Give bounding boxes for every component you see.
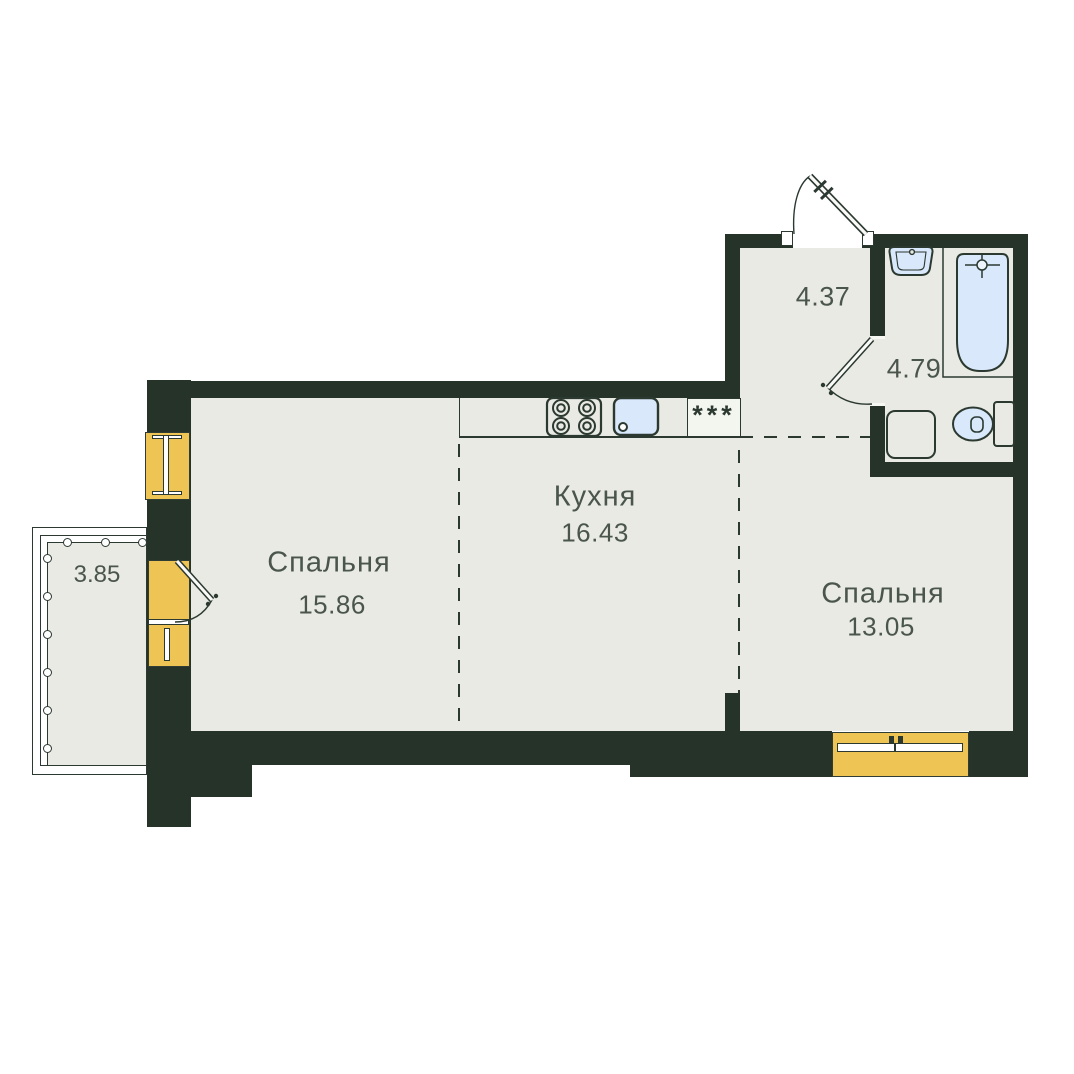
- glazing-post-icon: [63, 538, 72, 547]
- glazing-post-icon: [43, 706, 52, 715]
- glazing-post-icon: [43, 668, 52, 677]
- room-area-balcony: 3.85: [74, 561, 121, 589]
- room-area-hallway: 4.37: [796, 282, 851, 313]
- glazing-post-icon: [138, 538, 147, 547]
- wall-bath-divider-lower: [870, 403, 885, 462]
- room-label-kitchen: Кухня: [554, 481, 637, 514]
- room-label-bedroom2: Спальня: [821, 578, 945, 611]
- washing-machine-icon: [886, 410, 936, 459]
- glazing-post-icon: [43, 630, 52, 639]
- room-area-bedroom2: 13.05: [847, 612, 915, 643]
- room-area-bedroom1: 15.86: [298, 590, 366, 621]
- wall-bottom-1: [191, 731, 630, 765]
- wall-bath-bottom: [870, 462, 1013, 477]
- vent-shaft-symbol: ***: [692, 400, 736, 431]
- wall-stub-kitchen: [725, 693, 740, 731]
- wall-entry-left: [725, 234, 740, 398]
- glazing-post-icon: [43, 554, 52, 563]
- wall-bath-divider-upper: [870, 245, 885, 339]
- zone-separator: [738, 450, 740, 693]
- room-area-bathroom: 4.79: [887, 354, 942, 385]
- wall-bottom-2: [630, 731, 832, 777]
- room-area-kitchen: 16.43: [561, 518, 629, 549]
- floor-plan: ***: [0, 0, 1074, 1074]
- glazing-post-icon: [101, 538, 110, 547]
- vent-shaft: ***: [687, 398, 741, 437]
- wall-step: [191, 731, 252, 797]
- glazing-post-icon: [43, 592, 52, 601]
- zone-separator: [458, 444, 460, 731]
- zone-separator: [740, 436, 870, 438]
- room-label-bedroom1: Спальня: [267, 547, 391, 580]
- wall-bottom-3: [969, 731, 1028, 777]
- window-icon: [832, 732, 969, 777]
- glazing-post-icon: [43, 744, 52, 753]
- window-icon: [145, 432, 190, 500]
